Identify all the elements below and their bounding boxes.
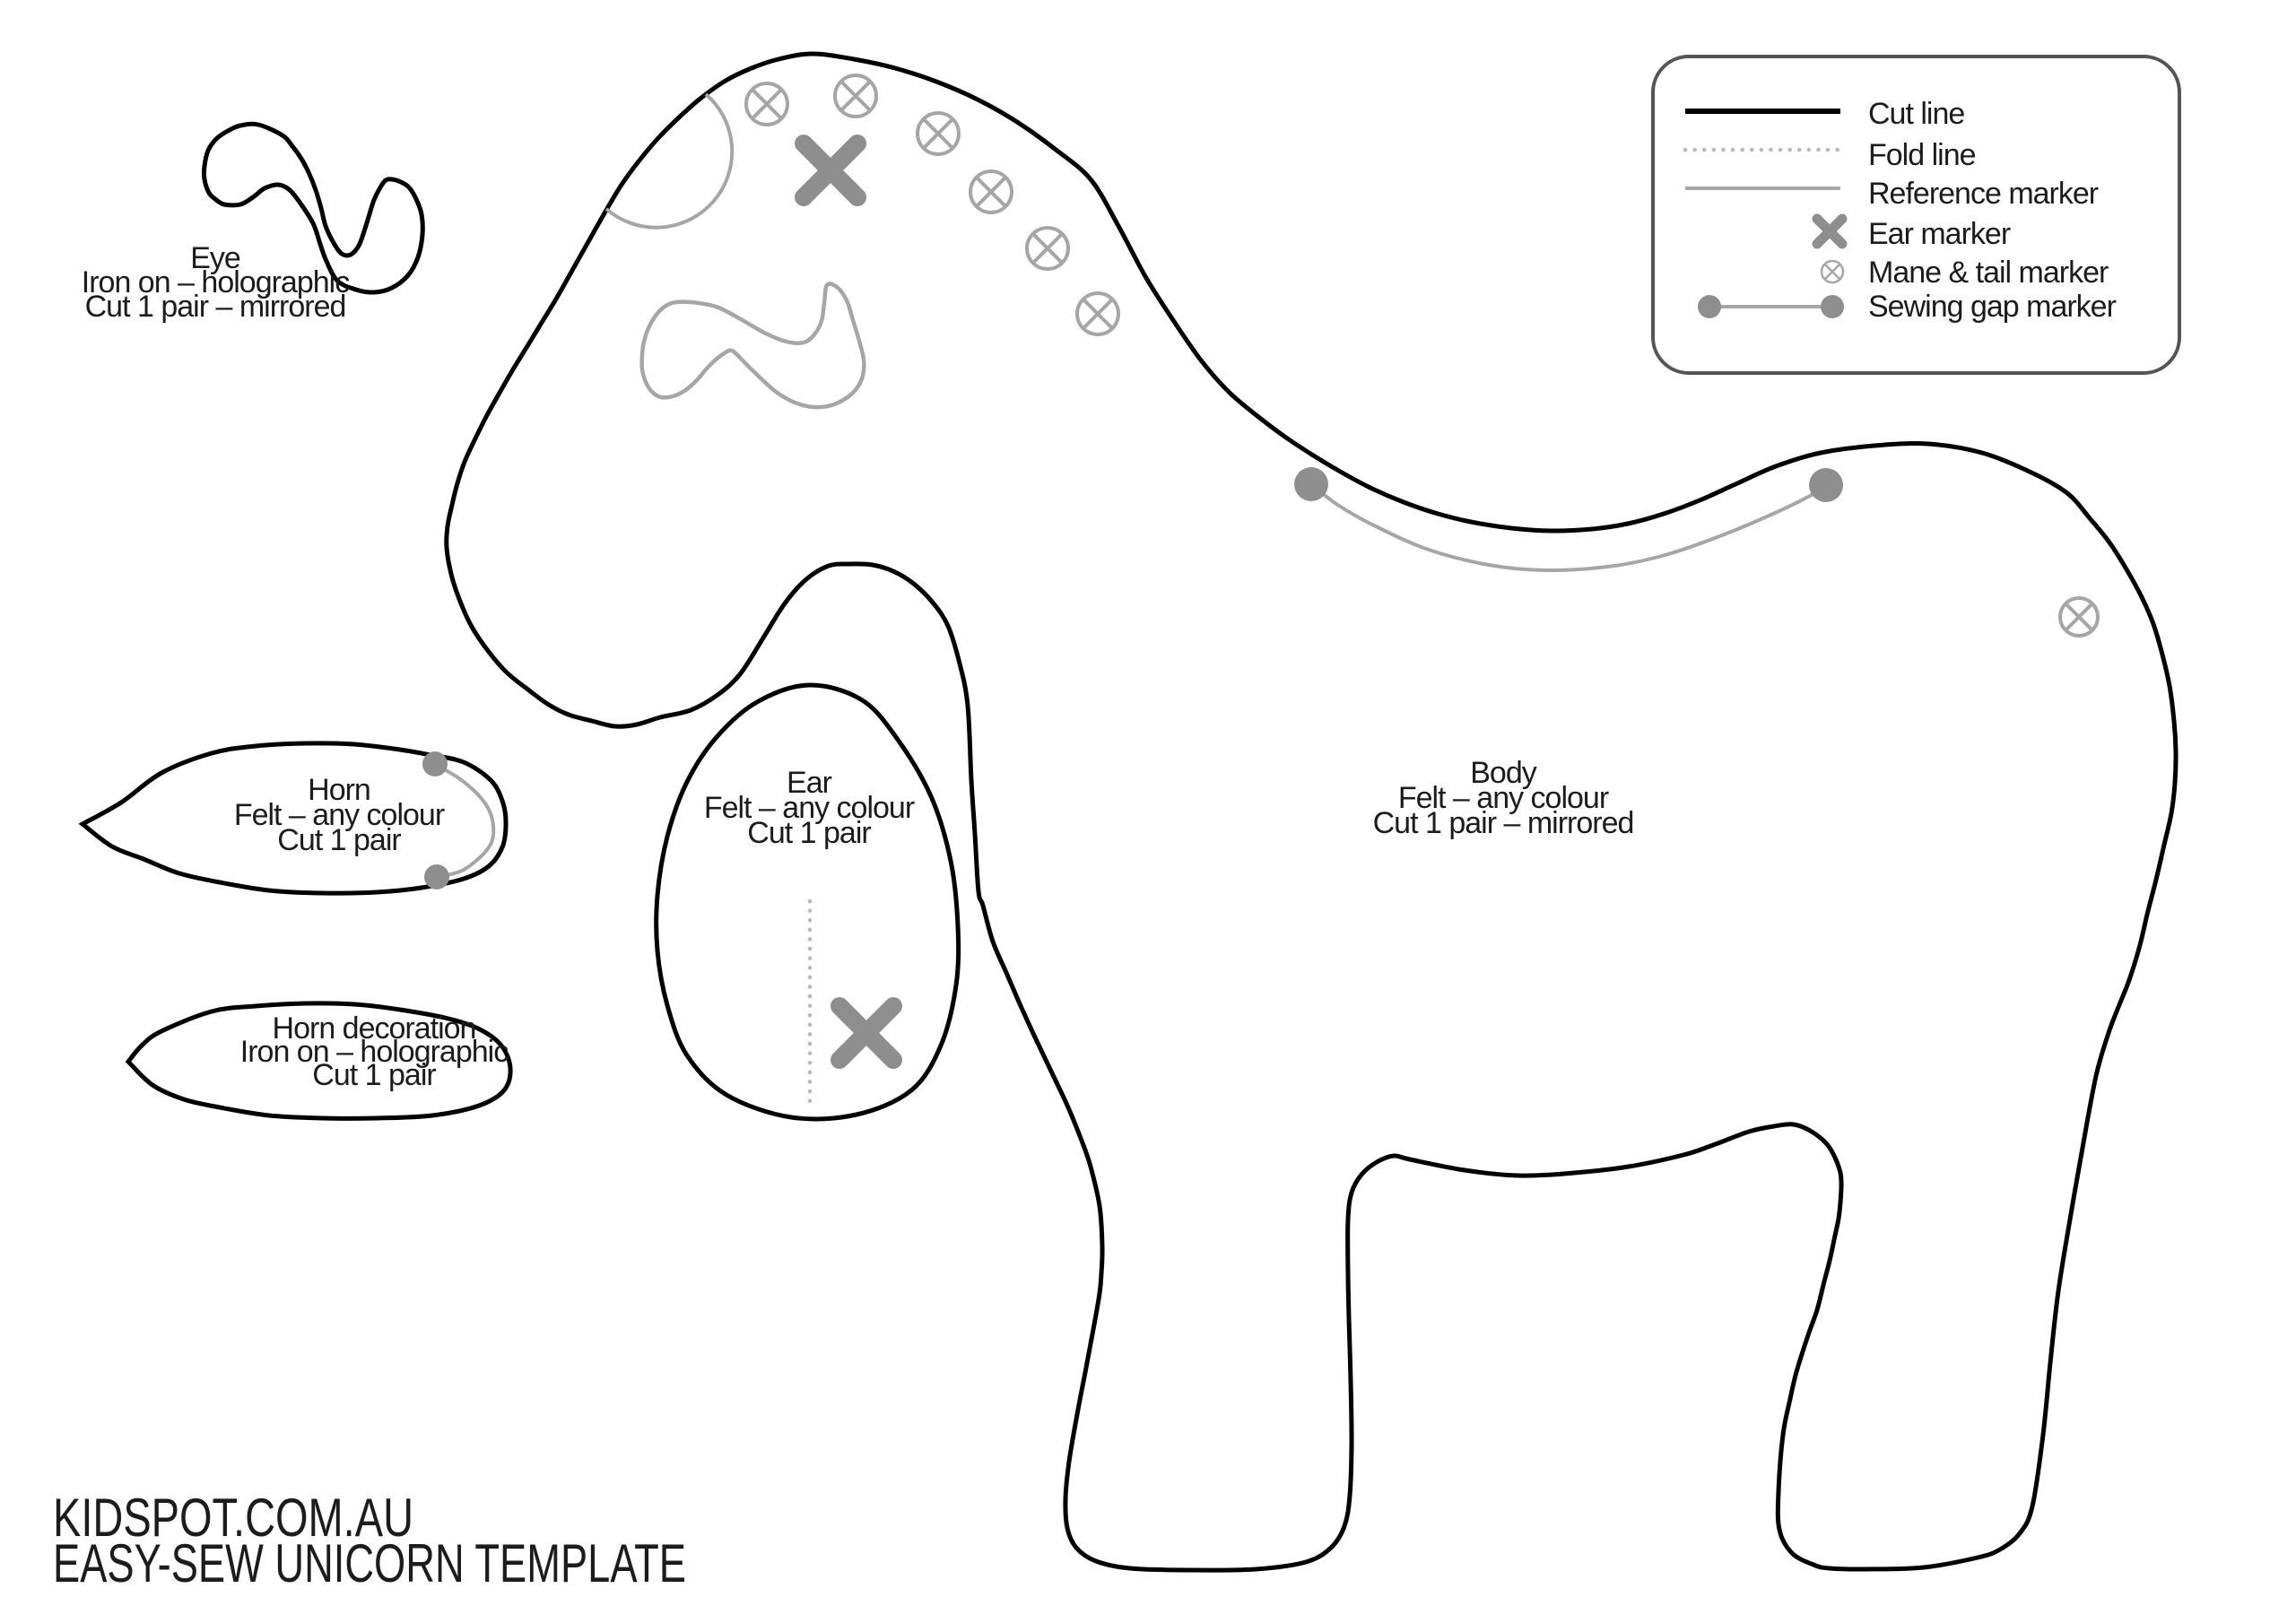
svg-text:Fold line: Fold line [1868, 138, 1976, 172]
svg-text:Cut 1 pair: Cut 1 pair [747, 816, 871, 850]
svg-text:Cut 1 pair – mirrored: Cut 1 pair – mirrored [1373, 806, 1634, 840]
svg-text:Cut 1 pair: Cut 1 pair [312, 1058, 436, 1092]
svg-text:Mane & tail marker: Mane & tail marker [1868, 256, 2109, 290]
svg-text:Cut line: Cut line [1868, 97, 1964, 131]
svg-text:Sewing gap marker: Sewing gap marker [1868, 290, 2117, 324]
svg-text:EASY-SEW UNICORN TEMPLATE: EASY-SEW UNICORN TEMPLATE [53, 1533, 686, 1593]
svg-text:Ear marker: Ear marker [1868, 217, 2011, 251]
svg-text:Cut 1 pair – mirrored: Cut 1 pair – mirrored [85, 290, 346, 324]
svg-text:Reference marker: Reference marker [1868, 177, 2099, 211]
svg-text:Cut 1 pair: Cut 1 pair [277, 823, 401, 857]
